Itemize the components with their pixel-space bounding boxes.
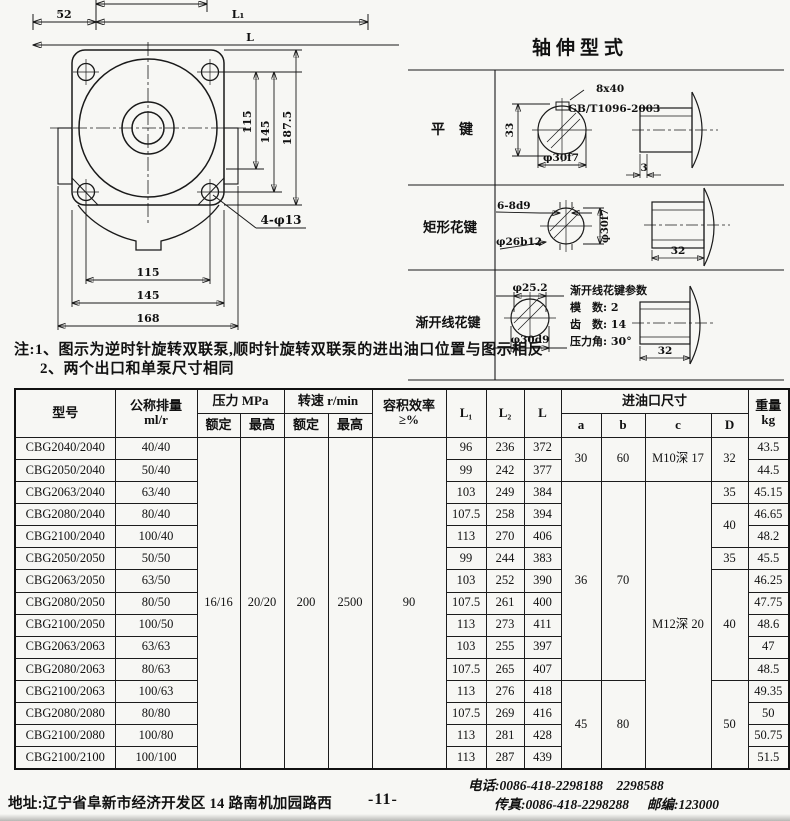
header-displacement-line2: ml/r: [116, 413, 197, 427]
header-displacement-line1: 公称排量: [116, 399, 197, 413]
cell-model: CBG2100/2100: [15, 747, 115, 769]
top-dimension-lines: [33, 0, 400, 52]
cell-speed-max: 2500: [328, 437, 372, 769]
cell-l2: 281: [486, 725, 524, 747]
cell-model: CBG2100/2063: [15, 680, 115, 702]
cell-displacement: 40/40: [115, 437, 197, 459]
cell-model: CBG2050/2050: [15, 548, 115, 570]
cell-model: CBG2100/2050: [15, 614, 115, 636]
dim-label-dia-30f7-spline: φ30f7: [600, 209, 611, 243]
cell-displacement: 63/40: [115, 481, 197, 503]
header-inlet-b: b: [601, 413, 645, 437]
footer-phone: 电话:0086-418-2298188 2298588: [468, 776, 719, 795]
cell-model: CBG2063/2040: [15, 481, 115, 503]
cell-l2: 287: [486, 747, 524, 769]
page-number: -11-: [368, 791, 398, 809]
cell-l2: 273: [486, 614, 524, 636]
cell-weight: 49.35: [748, 680, 789, 702]
header-displacement: 公称排量 ml/r: [115, 389, 197, 437]
dim-label-115-horizontal: 115: [137, 266, 160, 279]
header-speed-rated: 额定: [284, 413, 328, 437]
header-l2: L₂: [486, 389, 524, 437]
header-weight: 重量 kg: [748, 389, 789, 437]
cell-l2: 261: [486, 592, 524, 614]
involute-param-teeth: 齿 数: 14: [570, 317, 627, 331]
cell-l1: 99: [446, 459, 486, 481]
cell-l1: 107.5: [446, 592, 486, 614]
involute-param-module: 模 数: 2: [570, 300, 619, 314]
cell-displacement: 100/40: [115, 526, 197, 548]
cell-l: 439: [524, 747, 561, 769]
dim-label-145-vertical: 145: [259, 121, 272, 144]
cell-l: 384: [524, 481, 561, 503]
dim-label-dia-25-2: φ25.2: [512, 282, 547, 294]
cell-weight: 45.15: [748, 481, 789, 503]
header-pressure-rated: 额定: [197, 413, 240, 437]
shaft-types-title: 轴伸型式: [532, 36, 628, 59]
cell-l1: 113: [446, 747, 486, 769]
cell-weight: 43.5: [748, 437, 789, 459]
cell-displacement: 80/50: [115, 592, 197, 614]
footer-zip: 邮编:123000: [629, 797, 719, 812]
cell-inlet-d: 40: [711, 570, 748, 681]
cell-efficiency: 90: [372, 437, 446, 769]
cell-model: CBG2063/2050: [15, 570, 115, 592]
cell-inlet-b: 60: [601, 437, 645, 481]
cell-l1: 103: [446, 570, 486, 592]
header-speed-max: 最高: [328, 413, 372, 437]
cell-inlet-a: 45: [561, 680, 601, 769]
cell-displacement: 50/40: [115, 459, 197, 481]
row-label-involute-spline: 渐开线花键: [415, 315, 480, 331]
dim-label-145-horizontal: 145: [137, 289, 160, 302]
cell-l: 411: [524, 614, 561, 636]
cell-l2: 236: [486, 437, 524, 459]
cell-displacement: 100/50: [115, 614, 197, 636]
cell-weight: 47.75: [748, 592, 789, 614]
header-l: L: [524, 389, 561, 437]
cell-weight: 46.25: [748, 570, 789, 592]
dim-label-115-vertical: 115: [241, 111, 254, 134]
cell-l1: 96: [446, 437, 486, 459]
footer-fax-line: 传真:0086-418-2298288邮编:123000: [468, 795, 719, 814]
cell-l1: 107.5: [446, 703, 486, 725]
header-inlet-d: D: [711, 413, 748, 437]
dim-label-4-d13: 4-φ13: [261, 213, 302, 227]
cell-l2: 242: [486, 459, 524, 481]
cell-inlet-d: 35: [711, 548, 748, 570]
header-weight-line1: 重量: [749, 399, 789, 413]
row-label-flat-key: 平 键: [431, 121, 474, 138]
cell-l: 397: [524, 636, 561, 658]
cell-l1: 99: [446, 548, 486, 570]
cell-l: 394: [524, 504, 561, 526]
cell-l2: 258: [486, 504, 524, 526]
cell-displacement: 100/100: [115, 747, 197, 769]
cell-inlet-d: 40: [711, 504, 748, 548]
cell-l1: 107.5: [446, 504, 486, 526]
cell-l: 390: [524, 570, 561, 592]
shaft-extension-types-panel: 轴伸型式 平 键 8x40 GB/T1096-2003 33 φ30f7: [400, 30, 790, 382]
cell-model: CBG2040/2040: [15, 437, 115, 459]
cell-model: CBG2080/2063: [15, 658, 115, 680]
dim-label-dia-30f7: φ30f7: [543, 152, 579, 164]
cell-l2: 269: [486, 703, 524, 725]
cell-weight: 50: [748, 703, 789, 725]
pump-front-view-drawing: 52 L₁ L 4-φ13: [0, 0, 400, 385]
cell-l2: 252: [486, 570, 524, 592]
cell-weight: 50.75: [748, 725, 789, 747]
cell-l: 383: [524, 548, 561, 570]
cell-l2: 249: [486, 481, 524, 503]
footer-fax: 传真:0086-418-2298288: [494, 797, 629, 812]
involute-spline-side-view: [632, 286, 716, 364]
cell-weight: 51.5: [748, 747, 789, 769]
cell-inlet-b: 80: [601, 680, 645, 769]
dim-label-52: 52: [56, 8, 71, 21]
dim-label-32-rect: 32: [671, 245, 686, 257]
cell-inlet-d: 32: [711, 437, 748, 481]
cell-l2: 270: [486, 526, 524, 548]
cell-model: CBG2100/2040: [15, 526, 115, 548]
cell-pressure-max: 20/20: [240, 437, 284, 769]
dim-label-187-5: 187.5: [281, 111, 294, 145]
cell-weight: 47: [748, 636, 789, 658]
header-efficiency-line2: ≥%: [373, 413, 446, 427]
header-efficiency-line1: 容积效率: [373, 399, 446, 413]
cell-displacement: 80/40: [115, 504, 197, 526]
cell-displacement: 63/50: [115, 570, 197, 592]
dim-label-key-size: 8x40: [596, 83, 624, 95]
dim-label-32-involute: 32: [658, 345, 673, 357]
cell-inlet-a: 30: [561, 437, 601, 481]
header-inlet-a: a: [561, 413, 601, 437]
cell-l: 428: [524, 725, 561, 747]
row-label-rect-spline: 矩形花键: [423, 219, 477, 236]
involute-params-title: 渐开线花键参数: [570, 283, 648, 297]
cell-l2: 255: [486, 636, 524, 658]
cell-weight: 46.65: [748, 504, 789, 526]
cell-l1: 113: [446, 526, 486, 548]
cell-weight: 48.2: [748, 526, 789, 548]
cell-l1: 113: [446, 614, 486, 636]
cell-inlet-c: M12深 20: [645, 481, 711, 769]
dim-label-l: L: [246, 31, 254, 44]
dim-label-168: 168: [137, 312, 160, 325]
cell-model: CBG2080/2050: [15, 592, 115, 614]
header-pressure: 压力 MPa: [197, 389, 284, 413]
cell-displacement: 63/63: [115, 636, 197, 658]
header-efficiency: 容积效率 ≥%: [372, 389, 446, 437]
dim-label-key-standard: GB/T1096-2003: [568, 103, 660, 115]
cell-model: CBG2050/2040: [15, 459, 115, 481]
dim-label-dia-26b12: φ26b12: [496, 236, 542, 248]
cell-l1: 113: [446, 725, 486, 747]
cell-displacement: 100/63: [115, 680, 197, 702]
header-inlet: 进油口尺寸: [561, 389, 748, 413]
cell-displacement: 50/50: [115, 548, 197, 570]
cell-weight: 48.5: [748, 658, 789, 680]
notes-block: 注:1、图示为逆时针旋转双联泵,顺时针旋转双联泵的进出油口位置与图示相反 2、两…: [14, 341, 543, 379]
cell-weight: 48.6: [748, 614, 789, 636]
header-pressure-max: 最高: [240, 413, 284, 437]
footer-address: 地址:辽宁省阜新市经济开发区 14 路南机加园路西: [8, 792, 332, 813]
cell-model: CBG2080/2080: [15, 703, 115, 725]
cell-l2: 265: [486, 658, 524, 680]
cell-weight: 44.5: [748, 459, 789, 481]
cell-l: 407: [524, 658, 561, 680]
pump-spec-table: 型号 公称排量 ml/r 压力 MPa 转速 r/min 容积效率 ≥% L₁ …: [14, 388, 790, 770]
dim-label-6-8d9: 6-8d9: [497, 200, 531, 212]
cell-l2: 276: [486, 680, 524, 702]
cell-weight: 45.5: [748, 548, 789, 570]
cell-l: 416: [524, 703, 561, 725]
cell-inlet-a: 36: [561, 481, 601, 680]
cell-l: 406: [524, 526, 561, 548]
cell-speed-rated: 200: [284, 437, 328, 769]
cell-l2: 244: [486, 548, 524, 570]
cell-l1: 103: [446, 481, 486, 503]
header-speed: 转速 r/min: [284, 389, 372, 413]
header-model: 型号: [15, 389, 115, 437]
header-weight-line2: kg: [749, 413, 789, 427]
cell-inlet-b: 70: [601, 481, 645, 680]
cell-model: CBG2080/2040: [15, 504, 115, 526]
cell-l1: 103: [446, 636, 486, 658]
cell-inlet-d: 35: [711, 481, 748, 503]
cell-inlet-d: 50: [711, 680, 748, 769]
dim-label-3: 3: [641, 163, 648, 174]
cell-displacement: 100/80: [115, 725, 197, 747]
cell-l: 400: [524, 592, 561, 614]
scan-bottom-edge: [0, 814, 790, 821]
note-line-2: 2、两个出口和单泵尺寸相同: [14, 360, 543, 379]
cell-l1: 107.5: [446, 658, 486, 680]
header-inlet-c: c: [645, 413, 711, 437]
cell-inlet-c: M10深 17: [645, 437, 711, 481]
cell-l1: 113: [446, 680, 486, 702]
cell-l: 372: [524, 437, 561, 459]
cell-displacement: 80/80: [115, 703, 197, 725]
cell-pressure-rated: 16/16: [197, 437, 240, 769]
cell-model: CBG2100/2080: [15, 725, 115, 747]
note-line-1: 注:1、图示为逆时针旋转双联泵,顺时针旋转双联泵的进出油口位置与图示相反: [14, 341, 543, 360]
cell-displacement: 80/63: [115, 658, 197, 680]
header-l1: L₁: [446, 389, 486, 437]
cell-l: 418: [524, 680, 561, 702]
dim-label-33: 33: [504, 123, 516, 138]
cell-l: 377: [524, 459, 561, 481]
involute-param-angle: 压力角: 30°: [570, 334, 632, 348]
cell-model: CBG2063/2063: [15, 636, 115, 658]
rect-spline-side-view: [644, 188, 730, 266]
dim-label-l1: L₁: [232, 8, 245, 21]
footer-contact-block: 电话:0086-418-2298188 2298588 传真:0086-418-…: [468, 776, 719, 814]
table-row: CBG2040/2040 40/40 16/16 20/20 200 2500 …: [15, 437, 789, 459]
